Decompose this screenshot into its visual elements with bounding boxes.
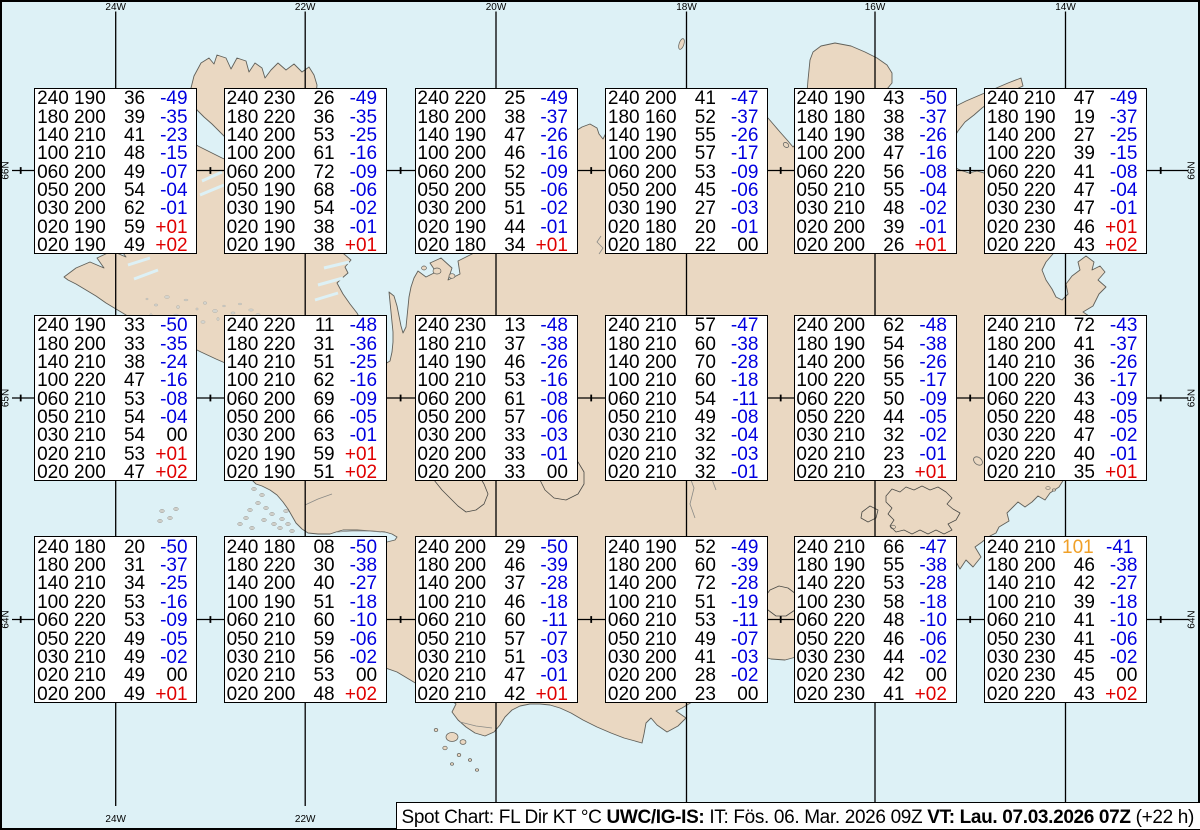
svg-text:20W: 20W <box>486 2 507 13</box>
svg-text:16W: 16W <box>865 2 886 13</box>
svg-text:66N: 66N <box>1 161 12 179</box>
svg-text:64N: 64N <box>1187 610 1198 628</box>
svg-text:18W: 18W <box>676 2 697 13</box>
svg-text:66N: 66N <box>1187 161 1198 179</box>
svg-text:24W: 24W <box>105 814 126 825</box>
svg-text:65N: 65N <box>1 389 12 407</box>
svg-text:14W: 14W <box>1055 2 1076 13</box>
svg-text:22W: 22W <box>295 814 316 825</box>
svg-text:64N: 64N <box>1 610 12 628</box>
svg-text:65N: 65N <box>1187 389 1198 407</box>
svg-text:22W: 22W <box>295 2 316 13</box>
svg-text:24W: 24W <box>105 2 126 13</box>
